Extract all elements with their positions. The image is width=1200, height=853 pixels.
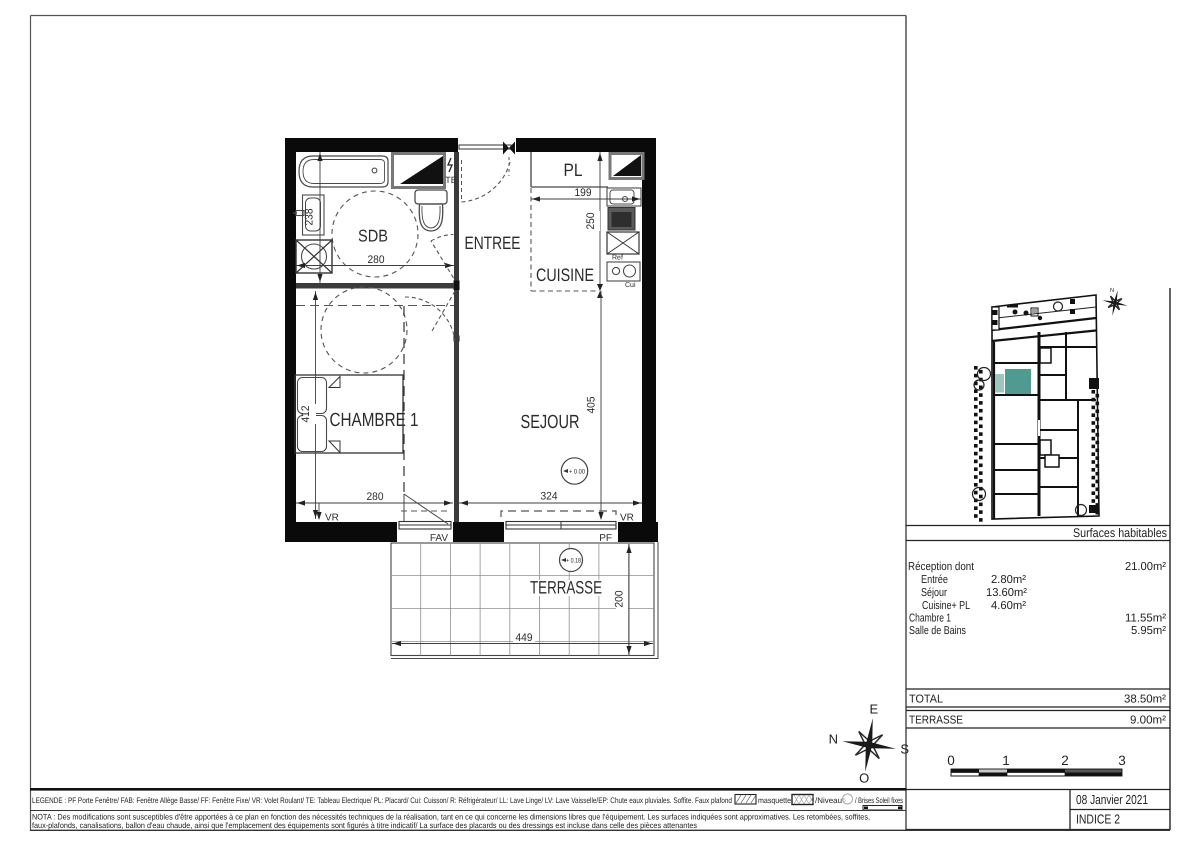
svg-text:449: 449	[516, 632, 533, 644]
svg-text:SEJOUR: SEJOUR	[521, 412, 580, 433]
svg-text:Surfaces habitables: Surfaces habitables	[1073, 526, 1167, 540]
svg-text:280: 280	[367, 491, 384, 503]
svg-text:TERRASSE: TERRASSE	[530, 578, 602, 598]
svg-text:1: 1	[1002, 753, 1010, 768]
svg-text:Salle de Bains: Salle de Bains	[909, 625, 966, 637]
svg-text:Chambre 1: Chambre 1	[909, 613, 951, 625]
svg-text:TERRASSE: TERRASSE	[909, 715, 963, 727]
svg-text:Entrée: Entrée	[921, 574, 948, 586]
svg-text:+ 0.00: + 0.00	[569, 469, 585, 476]
svg-text:VR: VR	[620, 513, 634, 524]
svg-text:CUISINE: CUISINE	[536, 265, 594, 285]
svg-text:E: E	[870, 701, 879, 716]
svg-text:FAV: FAV	[430, 533, 448, 544]
svg-text:5.95m²: 5.95m²	[1131, 625, 1166, 637]
svg-text:11.55m²: 11.55m²	[1125, 613, 1166, 625]
svg-text:0: 0	[947, 753, 955, 768]
svg-text:324: 324	[541, 491, 558, 503]
svg-text:250: 250	[585, 213, 597, 230]
svg-text:238: 238	[304, 209, 316, 226]
svg-text:Séjour: Séjour	[921, 587, 947, 599]
svg-text:LEGENDE : PF Porte Fenêtre/ FA: LEGENDE : PF Porte Fenêtre/ FAB: Fenêtre…	[32, 796, 732, 805]
svg-text:PF: PF	[599, 533, 612, 544]
svg-text:412: 412	[300, 406, 312, 423]
svg-text:PL: PL	[564, 160, 583, 180]
svg-text:CHAMBRE 1: CHAMBRE 1	[330, 410, 419, 431]
svg-text:VR: VR	[325, 513, 339, 524]
svg-text:13.60m²: 13.60m²	[986, 587, 1027, 599]
svg-text:N: N	[829, 731, 838, 746]
svg-text:4.60m²: 4.60m²	[991, 600, 1026, 612]
svg-text:/ Brises Soleil fixes: / Brises Soleil fixes	[855, 796, 903, 805]
svg-text:Ref: Ref	[612, 254, 623, 262]
svg-text:Réception dont: Réception dont	[908, 561, 975, 573]
svg-text:SDB: SDB	[358, 227, 388, 246]
svg-text:200: 200	[614, 591, 626, 608]
svg-text:2.80m²: 2.80m²	[991, 574, 1026, 586]
svg-text:38.50m²: 38.50m²	[1124, 694, 1166, 706]
svg-text:+ 0.18: + 0.18	[566, 558, 581, 565]
svg-text:Cuisine+ PL: Cuisine+ PL	[922, 600, 970, 612]
svg-text:ENTREE: ENTREE	[465, 233, 521, 253]
svg-text:TOTAL: TOTAL	[909, 694, 944, 706]
svg-text:280: 280	[368, 254, 385, 266]
svg-text:3: 3	[1118, 753, 1126, 768]
svg-text:TE: TE	[445, 175, 457, 185]
svg-text:199: 199	[575, 187, 592, 199]
svg-text:INDICE 2: INDICE 2	[1076, 812, 1120, 827]
svg-text:405: 405	[586, 397, 598, 414]
svg-text:S: S	[900, 742, 909, 757]
svg-text:Cui: Cui	[625, 281, 636, 289]
svg-text:faux-plafonds, canalisations,: faux-plafonds, canalisations, ballon d'e…	[32, 821, 697, 830]
svg-text:08 Janvier 2021: 08 Janvier 2021	[1076, 792, 1148, 807]
svg-text:2: 2	[1061, 753, 1069, 768]
svg-text:N: N	[1110, 287, 1114, 294]
svg-text:21.00m²: 21.00m²	[1125, 561, 1166, 573]
svg-text:9.00m²: 9.00m²	[1130, 715, 1166, 727]
svg-text:O: O	[859, 771, 869, 786]
svg-text:/Niveau: /Niveau	[815, 796, 842, 805]
svg-text:masquette: masquette	[758, 796, 791, 805]
